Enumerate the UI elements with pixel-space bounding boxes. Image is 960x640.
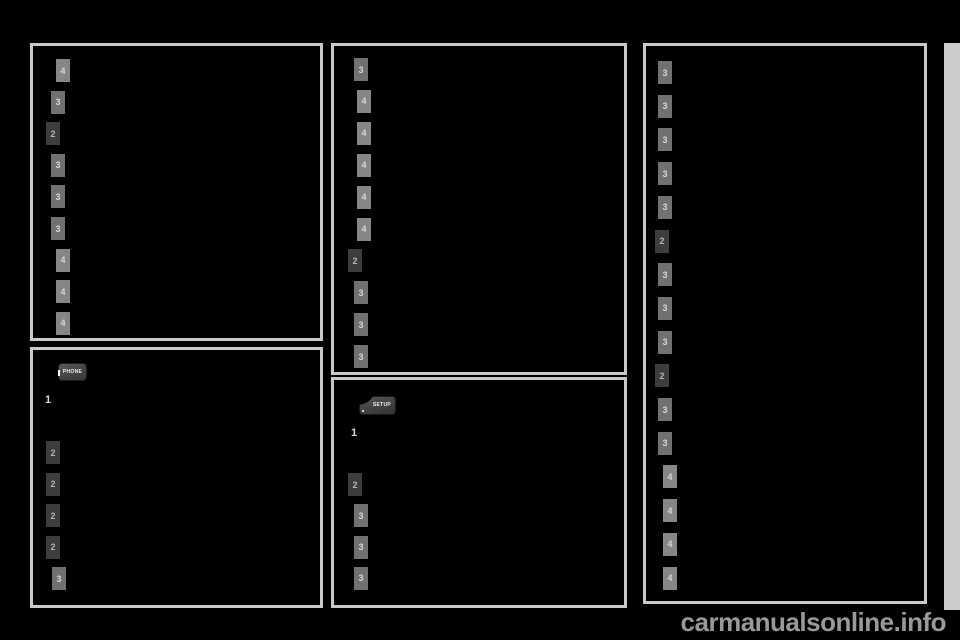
step-badge: 3	[354, 567, 368, 590]
step-badge: 3	[658, 331, 672, 354]
step-badge: 2	[46, 504, 60, 527]
step-badge: 3	[354, 313, 368, 336]
toc-box-top-left: 432333444	[30, 43, 323, 341]
step-badge: 3	[51, 185, 65, 208]
step-badge: 2	[348, 473, 362, 496]
step-badge: 3	[658, 95, 672, 118]
phone-button-label: PHONE	[63, 370, 82, 375]
step-badge: 3	[354, 536, 368, 559]
step-badge: 2	[46, 122, 60, 145]
step-badge: 2	[46, 536, 60, 559]
list-item-number: 1	[351, 427, 357, 439]
setup-button-label: SETUP	[373, 403, 391, 408]
step-badge: 3	[51, 91, 65, 114]
step-badge: 4	[357, 218, 371, 241]
step-badge: 4	[56, 312, 70, 335]
setup-button-image: SETUP	[359, 396, 396, 415]
step-badge: 4	[56, 59, 70, 82]
page-edge-tab	[944, 43, 960, 610]
step-badge: 2	[348, 249, 362, 272]
step-badge: 3	[658, 432, 672, 455]
step-badge: 3	[658, 128, 672, 151]
step-badge: 4	[357, 154, 371, 177]
toc-box-bottom-middle: SETUP 1 2333	[331, 377, 627, 608]
step-badge: 4	[357, 90, 371, 113]
step-badge: 3	[658, 162, 672, 185]
toc-box-right: 3333323332334444	[643, 43, 927, 604]
step-badge: 3	[51, 217, 65, 240]
step-badge: 2	[655, 230, 669, 253]
step-badge: 3	[658, 398, 672, 421]
button-indicator-mark	[362, 410, 364, 412]
step-badge: 4	[357, 122, 371, 145]
step-badge: 4	[663, 567, 677, 590]
step-badge: 4	[357, 186, 371, 209]
button-notch	[355, 390, 374, 405]
step-badge: 3	[354, 504, 368, 527]
step-badge: 3	[658, 263, 672, 286]
step-badge: 3	[658, 196, 672, 219]
toc-box-bottom-left: PHONE 1 22223	[30, 347, 323, 608]
watermark-text: carmanualsonline.info	[681, 607, 946, 638]
step-badge: 3	[354, 281, 368, 304]
step-badge: 3	[52, 567, 66, 590]
step-badge: 3	[354, 345, 368, 368]
step-badge: 2	[655, 364, 669, 387]
toc-box-top-middle: 3444442333	[331, 43, 627, 375]
step-badge: 4	[663, 499, 677, 522]
step-badge: 4	[663, 533, 677, 556]
step-badge: 2	[46, 441, 60, 464]
step-badge: 3	[51, 154, 65, 177]
step-badge: 3	[658, 61, 672, 84]
step-badge: 2	[46, 473, 60, 496]
button-indicator-mark	[58, 370, 60, 376]
step-badge: 4	[56, 249, 70, 272]
list-item-number: 1	[45, 394, 51, 406]
phone-button-image: PHONE	[58, 363, 87, 381]
step-badge: 3	[354, 58, 368, 81]
step-badge: 3	[658, 297, 672, 320]
manual-page: 432333444 PHONE 1 22223 3444442333 SETUP…	[0, 0, 960, 640]
step-badge: 4	[56, 280, 70, 303]
step-badge: 4	[663, 465, 677, 488]
